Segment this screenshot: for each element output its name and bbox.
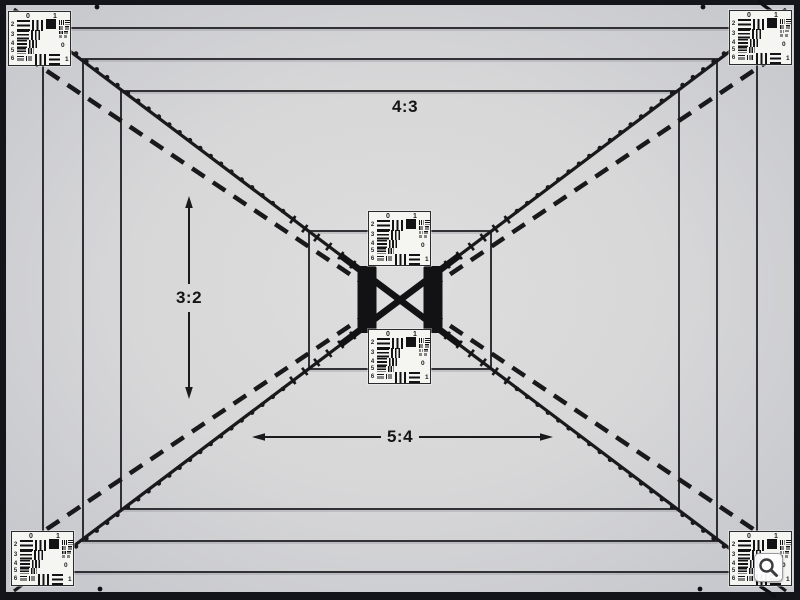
usaf-bar-pattern [738,47,747,54]
usaf-bar-pattern [752,29,762,39]
usaf-bar-pattern [425,220,430,225]
usaf-digit: 2 [10,22,15,28]
usaf-digit: 5 [731,47,736,53]
usaf-bar-pattern [425,344,429,348]
usaf-bar-pattern [62,540,67,545]
usaf-solid-square [406,219,416,229]
usaf-target-top-right: 0 1 2 3 4 5 6 0 1 [729,10,792,65]
usaf-digit: 3 [731,31,736,37]
usaf-target-top-left: 0 1 2 3 4 5 6 0 1 [8,11,71,66]
usaf-target-bottom-left: 0 1 2 3 4 5 6 0 1 [11,531,74,586]
usaf-digit: 6 [370,374,375,380]
usaf-bar-pattern [35,54,46,65]
usaf-bar-pattern [59,26,63,30]
usaf-digit: 5 [731,568,736,574]
usaf-bar-pattern [59,20,64,25]
usaf-bar-pattern [68,540,73,545]
usaf-digit: 4 [370,359,375,365]
usaf-bar-pattern [738,19,751,30]
usaf-bar-pattern [377,374,384,380]
usaf-bar-pattern [395,254,406,265]
usaf-bar-pattern [419,231,423,235]
usaf-bar-pattern [68,546,72,550]
usaf-digit: 4 [370,241,375,247]
usaf-digit: 1 [425,375,429,382]
usaf-bar-pattern [786,546,790,550]
usaf-digit: 1 [68,577,72,584]
usaf-bar-pattern [747,576,753,582]
usaf-digit: 6 [13,576,18,582]
usaf-bar-pattern [738,568,747,575]
usaf-bar-pattern [419,226,423,230]
usaf-digit: 6 [731,576,736,582]
usaf-bar-pattern [388,248,395,255]
usaf-bar-pattern [738,29,750,39]
usaf-bar-pattern [377,248,386,255]
usaf-bar-pattern [28,48,35,55]
usaf-bar-pattern [67,551,71,555]
center-bar-left [358,266,377,333]
usaf-bar-pattern [17,20,30,31]
usaf-bar-pattern [425,226,429,230]
usaf-digit: 6 [370,256,375,262]
usaf-bar-pattern [62,555,65,558]
usaf-bar-pattern [17,30,29,40]
usaf-bar-pattern [59,31,63,35]
usaf-digit: 4 [10,41,15,47]
usaf-bar-pattern [756,53,767,64]
usaf-bar-pattern [52,574,63,585]
usaf-bar-pattern [49,54,60,65]
usaf-bar-pattern [780,540,785,545]
usaf-solid-square [767,539,777,549]
usaf-bar-pattern [785,551,789,555]
usaf-bar-pattern [424,353,427,356]
usaf-bar-pattern [389,358,397,366]
usaf-bar-pattern [419,353,422,356]
usaf-bar-pattern [17,48,26,55]
usaf-digit: 5 [13,568,18,574]
usaf-bar-pattern [386,374,392,380]
usaf-bar-pattern [785,555,788,558]
usaf-bar-pattern [388,366,395,373]
usaf-digit: 3 [13,552,18,558]
usaf-bar-pattern [65,26,69,30]
usaf-bar-pattern [738,550,750,560]
usaf-bar-pattern [26,56,32,62]
usaf-bar-pattern [392,220,403,231]
usaf-bar-pattern [786,25,790,29]
usaf-bar-pattern [780,30,784,34]
usaf-bar-pattern [377,240,387,248]
usaf-digit: 5 [10,48,15,54]
usaf-bar-pattern [786,19,791,24]
usaf-bar-pattern [780,34,783,37]
usaf-bar-pattern [749,47,756,54]
usaf-bar-pattern [738,55,745,61]
usaf-bar-pattern [750,39,758,47]
usaf-bar-pattern [32,560,40,568]
usaf-bar-pattern [20,568,29,575]
usaf-bar-pattern [389,240,397,248]
usaf-bar-pattern [409,254,420,265]
usaf-bar-pattern [785,34,788,37]
usaf-bar-pattern [753,540,764,551]
usaf-digit: 3 [731,552,736,558]
usaf-bar-pattern [424,349,428,353]
usaf-bar-pattern [424,235,427,238]
usaf-bar-pattern [770,53,781,64]
usaf-digit: 2 [731,542,736,548]
usaf-solid-square [406,337,416,347]
usaf-bar-pattern [17,40,27,48]
usaf-bar-pattern [780,546,784,550]
aspect-ratio-label-3-2: 3:2 [172,288,206,308]
magnifier-zoom-button[interactable] [754,553,783,582]
usaf-bar-pattern [377,220,390,231]
usaf-bar-pattern [65,20,70,25]
usaf-bar-pattern [29,40,37,48]
usaf-digit: 0 [421,361,425,368]
usaf-bar-pattern [67,555,70,558]
usaf-bar-pattern [780,25,784,29]
usaf-digit: 1 [786,577,790,584]
usaf-bar-pattern [377,348,389,358]
usaf-bar-pattern [38,574,49,585]
usaf-bar-pattern [29,576,35,582]
usaf-bar-pattern [738,560,748,568]
usaf-bar-pattern [20,550,32,560]
usaf-digit: 3 [370,232,375,238]
usaf-bar-pattern [419,220,424,225]
usaf-bar-pattern [747,55,753,61]
usaf-digit: 3 [10,32,15,38]
usaf-bar-pattern [62,551,66,555]
usaf-bar-pattern [35,540,46,551]
center-bar-right [424,266,443,333]
usaf-digit: 4 [731,561,736,567]
usaf-bar-pattern [424,231,428,235]
usaf-bar-pattern [377,358,387,366]
usaf-bar-pattern [386,256,392,262]
usaf-bar-pattern [738,39,748,47]
usaf-bar-pattern [34,550,44,560]
usaf-bar-pattern [20,576,27,582]
usaf-bar-pattern [738,576,745,582]
test-chart-photo: 4:3 3:2 5:4 0 1 2 3 4 5 6 0 1 0 1 2 3 4 … [0,0,800,600]
usaf-digit: 2 [731,21,736,27]
usaf-digit: 2 [370,340,375,346]
usaf-bar-pattern [377,366,386,373]
usaf-bar-pattern [395,372,406,383]
usaf-bar-pattern [391,348,401,358]
usaf-bar-pattern [425,338,430,343]
usaf-digit: 3 [370,350,375,356]
usaf-digit: 2 [13,542,18,548]
usaf-bar-pattern [64,31,68,35]
usaf-bar-pattern [780,19,785,24]
usaf-bar-pattern [17,56,24,62]
usaf-digit: 0 [61,43,65,50]
usaf-digit: 5 [370,366,375,372]
usaf-bar-pattern [738,540,751,551]
usaf-bar-pattern [377,230,389,240]
usaf-digit: 6 [731,55,736,61]
usaf-solid-square [767,18,777,28]
usaf-bar-pattern [64,35,67,38]
usaf-bar-pattern [409,372,420,383]
usaf-bar-pattern [419,344,423,348]
aspect-ratio-label-4-3: 4:3 [388,97,422,117]
usaf-bar-pattern [419,235,422,238]
usaf-bar-pattern [59,35,62,38]
usaf-digit: 1 [425,257,429,264]
usaf-digit: 2 [370,222,375,228]
usaf-bar-pattern [20,540,33,551]
usaf-bar-pattern [786,540,791,545]
usaf-digit: 0 [421,243,425,250]
chart-linework [0,0,800,600]
usaf-bar-pattern [419,338,424,343]
usaf-bar-pattern [377,338,390,349]
usaf-digit: 6 [10,56,15,62]
usaf-digit: 0 [64,563,68,570]
usaf-bar-pattern [31,568,38,575]
usaf-solid-square [49,539,59,549]
usaf-solid-square [46,19,56,29]
usaf-digit: 0 [782,42,786,49]
usaf-bar-pattern [391,230,401,240]
usaf-digit: 1 [786,56,790,63]
usaf-bar-pattern [419,349,423,353]
usaf-bar-pattern [785,30,789,34]
usaf-digit: 4 [731,40,736,46]
usaf-bar-pattern [32,20,43,31]
usaf-target-center-top: 0 1 2 3 4 5 6 0 1 [368,211,431,266]
usaf-bar-pattern [392,338,403,349]
usaf-target-center-bottom: 0 1 2 3 4 5 6 0 1 [368,329,431,384]
usaf-bar-pattern [377,256,384,262]
usaf-digit: 4 [13,561,18,567]
aspect-ratio-label-5-4: 5:4 [383,427,417,447]
usaf-bar-pattern [20,560,30,568]
usaf-bar-pattern [753,19,764,30]
usaf-bar-pattern [62,546,66,550]
usaf-bar-pattern [31,30,41,40]
usaf-digit: 5 [370,248,375,254]
usaf-digit: 1 [65,57,69,64]
magnifier-icon [755,554,782,581]
